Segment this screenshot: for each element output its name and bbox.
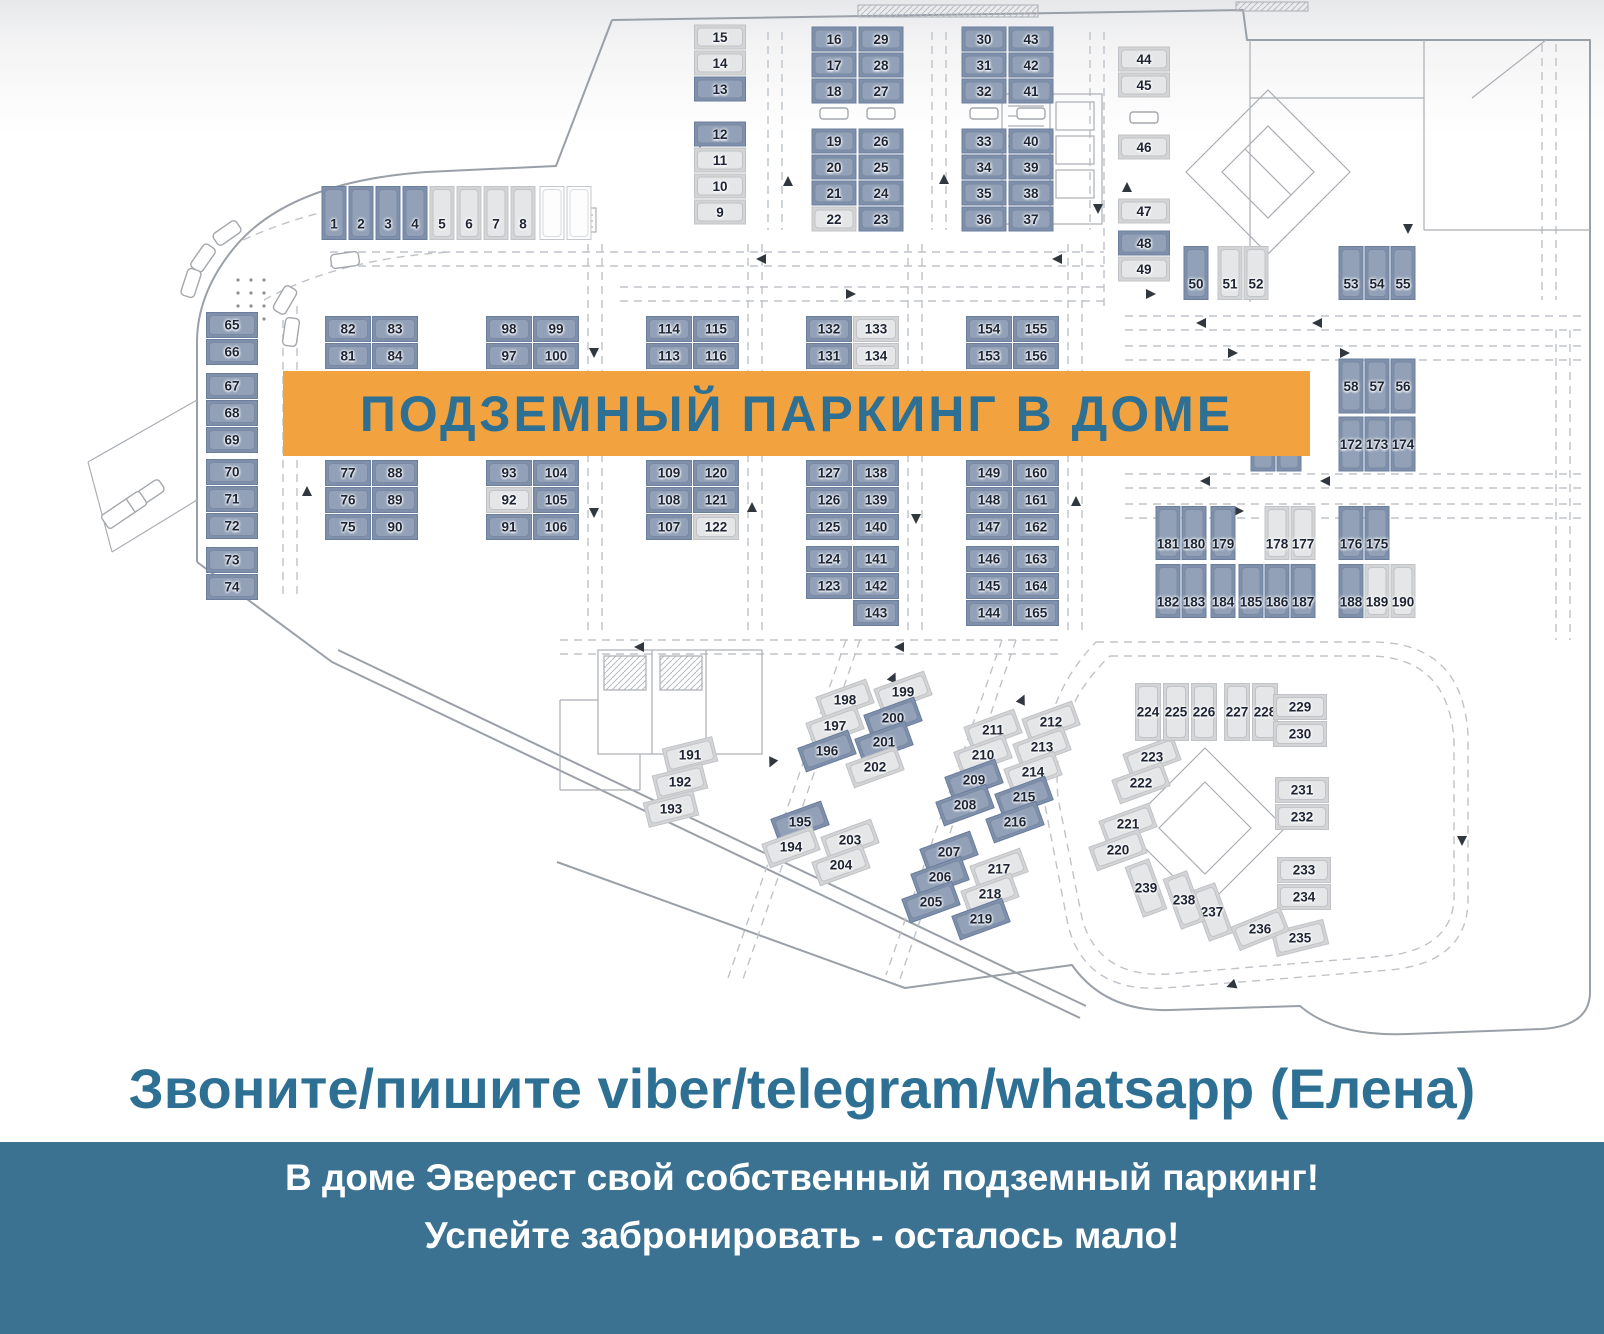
parking-spot-28: 28 — [859, 53, 904, 78]
parking-spot-141: 141 — [853, 546, 899, 572]
spot-number: 18 — [826, 84, 841, 99]
spot-number: 107 — [658, 520, 681, 535]
parking-spot-106: 106 — [533, 514, 579, 540]
parking-spot-140: 140 — [853, 514, 899, 540]
parking-spot-29: 29 — [859, 27, 904, 52]
parking-spots-layer: 1234567815141312111091629172818271926202… — [0, 0, 1604, 1040]
parking-spot-54: 54 — [1365, 246, 1390, 300]
parking-spot-226: 226 — [1191, 683, 1217, 741]
main-banner-title: ПОДЗЕМНЫЙ ПАРКИНГ В ДОМЕ — [360, 385, 1233, 443]
spot-number: 88 — [387, 466, 402, 481]
spot-number: 19 — [826, 134, 841, 149]
spot-number: 181 — [1157, 536, 1180, 551]
spot-number: 56 — [1395, 379, 1410, 394]
spot-number: 36 — [976, 212, 991, 227]
spot-number: 191 — [679, 748, 702, 763]
parking-spot-163: 163 — [1013, 546, 1059, 572]
spot-number: 46 — [1136, 140, 1151, 155]
parking-spot-121: 121 — [693, 487, 739, 513]
spot-number: 98 — [501, 322, 516, 337]
parking-spot-58: 58 — [1339, 359, 1364, 414]
parking-spot-90: 90 — [372, 514, 418, 540]
parking-spot-84: 84 — [372, 343, 418, 369]
spot-number: 116 — [705, 349, 727, 364]
parking-spot-9: 9 — [694, 200, 746, 225]
parking-spot-68: 68 — [206, 400, 258, 426]
spot-number: 231 — [1291, 783, 1314, 798]
spot-number: 126 — [818, 493, 841, 508]
spot-number: 57 — [1369, 379, 1384, 394]
spot-number: 74 — [224, 580, 239, 595]
spot-number: 10 — [712, 179, 727, 194]
spot-number: 69 — [224, 433, 239, 448]
spot-number: 45 — [1136, 78, 1151, 93]
parking-spot-8: 8 — [511, 186, 536, 240]
parking-spot-33: 33 — [962, 129, 1007, 154]
parking-spot-72: 72 — [206, 513, 258, 539]
parking-spot-185: 185 — [1239, 564, 1264, 618]
parking-spot-104: 104 — [533, 460, 579, 486]
spot-number: 99 — [548, 322, 563, 337]
spot-number: 222 — [1130, 776, 1153, 791]
parking-spot-233: 233 — [1277, 857, 1331, 883]
spot-number: 190 — [1392, 594, 1415, 609]
parking-spot-26: 26 — [859, 129, 904, 154]
spot-number: 229 — [1289, 700, 1312, 715]
spot-number: 180 — [1183, 536, 1206, 551]
parking-spot-73: 73 — [206, 547, 258, 573]
spot-number: 192 — [669, 775, 692, 790]
spot-number: 51 — [1222, 276, 1237, 291]
parking-spot-53: 53 — [1339, 246, 1364, 300]
parking-spot-183: 183 — [1182, 564, 1207, 618]
parking-spot-180: 180 — [1182, 506, 1207, 560]
parking-spot-114: 114 — [646, 316, 692, 342]
spot-number: 3 — [384, 216, 392, 231]
parking-spot-122: 122 — [693, 514, 739, 540]
spot-number: 140 — [865, 520, 888, 535]
spot-number: 41 — [1023, 84, 1038, 99]
parking-spot-70: 70 — [206, 459, 258, 485]
spot-number: 233 — [1293, 863, 1316, 878]
spot-number: 55 — [1395, 276, 1410, 291]
spot-number: 54 — [1369, 276, 1384, 291]
spot-number: 175 — [1366, 536, 1389, 551]
spot-number: 75 — [340, 520, 355, 535]
spot-number: 127 — [818, 466, 841, 481]
parking-spot-142: 142 — [853, 573, 899, 599]
parking-spot-143: 143 — [853, 600, 899, 626]
spot-number: 106 — [545, 520, 568, 535]
parking-spot-91: 91 — [486, 514, 532, 540]
spot-number: 104 — [545, 466, 568, 481]
spot-number: 47 — [1136, 204, 1151, 219]
parking-spot-109: 109 — [646, 460, 692, 486]
spot-number: 185 — [1240, 594, 1263, 609]
spot-number: 196 — [816, 744, 839, 759]
spot-number: 153 — [978, 349, 1001, 364]
spot-number: 161 — [1025, 493, 1048, 508]
spot-number: 172 — [1340, 437, 1363, 452]
spot-number: 13 — [712, 82, 727, 97]
parking-spot-145: 145 — [966, 573, 1012, 599]
parking-spot-16: 16 — [812, 27, 857, 52]
spot-number: 178 — [1266, 536, 1289, 551]
spot-number: 147 — [978, 520, 1001, 535]
parking-spot-187: 187 — [1291, 564, 1316, 618]
parking-spot-37: 37 — [1009, 207, 1054, 232]
parking-spot-1: 1 — [322, 186, 347, 240]
parking-spot-113: 113 — [646, 343, 692, 369]
parking-spot-66: 66 — [206, 339, 258, 365]
spot-number: 28 — [873, 58, 888, 73]
parking-spot-35: 35 — [962, 181, 1007, 206]
parking-spot-120: 120 — [693, 460, 739, 486]
parking-spot-50: 50 — [1184, 246, 1209, 300]
spot-number: 37 — [1023, 212, 1038, 227]
spot-number: 134 — [865, 349, 888, 364]
spot-number: 81 — [340, 349, 355, 364]
main-banner: ПОДЗЕМНЫЙ ПАРКИНГ В ДОМЕ — [283, 371, 1310, 456]
parking-spot-189: 189 — [1365, 564, 1390, 618]
spot-number: 7 — [492, 216, 500, 231]
spot-number: 21 — [826, 186, 841, 201]
parking-spot-107: 107 — [646, 514, 692, 540]
spot-number: 187 — [1292, 594, 1315, 609]
parking-spot-224: 224 — [1135, 683, 1161, 741]
spot-number: 23 — [873, 212, 888, 227]
parking-spot-162: 162 — [1013, 514, 1059, 540]
car-stall-marker — [543, 189, 562, 237]
parking-spot-71: 71 — [206, 486, 258, 512]
footer-band: В доме Эверест свой собственный подземны… — [0, 1142, 1604, 1334]
parking-spot-65: 65 — [206, 312, 258, 338]
spot-number: 182 — [1157, 594, 1180, 609]
parking-spot-48: 48 — [1118, 231, 1170, 256]
parking-spot-6: 6 — [457, 186, 482, 240]
spot-number: 84 — [387, 349, 402, 364]
spot-number: 235 — [1289, 931, 1312, 946]
spot-number: 113 — [658, 349, 680, 364]
spot-number: 219 — [970, 912, 993, 927]
spot-number: 109 — [658, 466, 681, 481]
parking-spot-178: 178 — [1265, 506, 1290, 560]
spot-number: 27 — [873, 84, 888, 99]
spot-number: 100 — [545, 349, 568, 364]
parking-spot-67: 67 — [206, 373, 258, 399]
parking-spot-123: 123 — [806, 573, 852, 599]
spot-number: 77 — [340, 466, 355, 481]
parking-spot-99: 99 — [533, 316, 579, 342]
spot-number: 141 — [865, 552, 888, 567]
spot-number: 9 — [716, 205, 724, 220]
parking-spot-156: 156 — [1013, 343, 1059, 369]
parking-spot-133: 133 — [853, 316, 899, 342]
parking-spot-3: 3 — [376, 186, 401, 240]
spot-number: 33 — [976, 134, 991, 149]
spot-number: 227 — [1226, 705, 1249, 720]
parking-spot-176: 176 — [1339, 506, 1364, 560]
spot-number: 22 — [826, 212, 841, 227]
spot-number: 82 — [340, 322, 355, 337]
parking-spot-239: 239 — [1125, 858, 1168, 918]
spot-number: 173 — [1366, 437, 1389, 452]
contact-headline: Звоните/пишите viber/telegram/whatsapp (… — [0, 1034, 1604, 1142]
parking-spot-98: 98 — [486, 316, 532, 342]
parking-spot-93: 93 — [486, 460, 532, 486]
parking-spot-74: 74 — [206, 574, 258, 600]
spot-number: 11 — [713, 153, 727, 168]
parking-spot-76: 76 — [325, 487, 371, 513]
parking-spot-165: 165 — [1013, 600, 1059, 626]
parking-spot-126: 126 — [806, 487, 852, 513]
parking-spot-41: 41 — [1009, 79, 1054, 104]
parking-spot-21: 21 — [812, 181, 857, 206]
parking-spot-17: 17 — [812, 53, 857, 78]
parking-spot-blank — [567, 186, 592, 240]
spot-number: 138 — [865, 466, 888, 481]
spot-number: 72 — [224, 519, 239, 534]
spot-number: 114 — [658, 322, 680, 337]
parking-spot-144: 144 — [966, 600, 1012, 626]
parking-spot-222: 222 — [1111, 762, 1171, 805]
spot-number: 42 — [1023, 58, 1038, 73]
spot-number: 164 — [1025, 579, 1048, 594]
spot-number: 202 — [864, 760, 887, 775]
parking-spot-14: 14 — [694, 51, 746, 76]
parking-spot-181: 181 — [1156, 506, 1181, 560]
parking-spot-186: 186 — [1265, 564, 1290, 618]
spot-number: 83 — [387, 322, 402, 337]
car-stall-marker — [570, 189, 589, 237]
spot-number: 50 — [1188, 276, 1203, 291]
spot-number: 76 — [340, 493, 355, 508]
parking-spot-42: 42 — [1009, 53, 1054, 78]
parking-spot-125: 125 — [806, 514, 852, 540]
parking-spot-179: 179 — [1211, 506, 1236, 560]
spot-number: 194 — [780, 840, 803, 855]
spot-number: 93 — [501, 466, 516, 481]
parking-spot-230: 230 — [1273, 721, 1327, 747]
parking-spot-10: 10 — [694, 174, 746, 199]
spot-number: 70 — [224, 465, 239, 480]
footer-line-1: В доме Эверест свой собственный подземны… — [285, 1154, 1319, 1202]
parking-spot-161: 161 — [1013, 487, 1059, 513]
parking-spot-15: 15 — [694, 25, 746, 50]
parking-spot-154: 154 — [966, 316, 1012, 342]
spot-number: 122 — [705, 520, 728, 535]
parking-spot-20: 20 — [812, 155, 857, 180]
spot-number: 162 — [1025, 520, 1048, 535]
spot-number: 26 — [873, 134, 888, 149]
spot-number: 8 — [519, 216, 527, 231]
spot-number: 123 — [818, 579, 841, 594]
parking-spot-44: 44 — [1118, 47, 1170, 72]
spot-number: 160 — [1025, 466, 1048, 481]
parking-spot-7: 7 — [484, 186, 509, 240]
spot-number: 226 — [1193, 705, 1216, 720]
parking-spot-193: 193 — [643, 790, 700, 828]
spot-number: 65 — [224, 318, 239, 333]
parking-spot-231: 231 — [1275, 777, 1329, 803]
spot-number: 189 — [1366, 594, 1389, 609]
spot-number: 176 — [1340, 536, 1363, 551]
spot-number: 216 — [1004, 815, 1027, 830]
parking-spot-89: 89 — [372, 487, 418, 513]
spot-number: 31 — [976, 58, 991, 73]
parking-spot-27: 27 — [859, 79, 904, 104]
parking-spot-30: 30 — [962, 27, 1007, 52]
spot-number: 144 — [978, 606, 1001, 621]
spot-number: 225 — [1165, 705, 1188, 720]
spot-number: 232 — [1291, 810, 1314, 825]
parking-spot-227: 227 — [1224, 683, 1250, 741]
parking-spot-138: 138 — [853, 460, 899, 486]
spot-number: 149 — [978, 466, 1001, 481]
parking-spot-172: 172 — [1339, 417, 1364, 472]
parking-spot-22: 22 — [812, 207, 857, 232]
parking-spot-190: 190 — [1391, 564, 1416, 618]
parking-spot-40: 40 — [1009, 129, 1054, 154]
spot-number: 108 — [658, 493, 681, 508]
spot-number: 121 — [705, 493, 728, 508]
parking-spot-12: 12 — [694, 122, 746, 147]
parking-spot-124: 124 — [806, 546, 852, 572]
spot-number: 143 — [865, 606, 888, 621]
spot-number: 148 — [978, 493, 1001, 508]
spot-number: 184 — [1212, 594, 1235, 609]
parking-spot-11: 11 — [694, 148, 746, 173]
parking-spot-43: 43 — [1009, 27, 1054, 52]
parking-spot-175: 175 — [1365, 506, 1390, 560]
spot-number: 25 — [873, 160, 888, 175]
parking-spot-234: 234 — [1277, 884, 1331, 910]
parking-spot-108: 108 — [646, 487, 692, 513]
parking-spot-19: 19 — [812, 129, 857, 154]
spot-number: 92 — [501, 493, 516, 508]
spot-number: 49 — [1136, 262, 1151, 277]
parking-spot-83: 83 — [372, 316, 418, 342]
spot-number: 35 — [976, 186, 991, 201]
spot-number: 5 — [438, 216, 446, 231]
spot-number: 71 — [224, 492, 239, 507]
spot-number: 43 — [1023, 32, 1038, 47]
parking-spot-100: 100 — [533, 343, 579, 369]
footer-line-2: Успейте забронировать - осталось мало! — [425, 1212, 1180, 1260]
parking-spot-51: 51 — [1218, 246, 1243, 300]
parking-spot-34: 34 — [962, 155, 1007, 180]
spot-number: 38 — [1023, 186, 1038, 201]
parking-spot-75: 75 — [325, 514, 371, 540]
spot-number: 220 — [1107, 843, 1130, 858]
spot-number: 39 — [1023, 160, 1038, 175]
spot-number: 16 — [826, 32, 841, 47]
spot-number: 52 — [1248, 276, 1263, 291]
parking-spot-134: 134 — [853, 343, 899, 369]
parking-plan-flyer: 1234567815141312111091629172818271926202… — [0, 0, 1604, 1334]
parking-spot-232: 232 — [1275, 804, 1329, 830]
parking-spot-97: 97 — [486, 343, 532, 369]
parking-spot-229: 229 — [1273, 694, 1327, 720]
parking-spot-57: 57 — [1365, 359, 1390, 414]
spot-number: 146 — [978, 552, 1001, 567]
parking-spot-225: 225 — [1163, 683, 1189, 741]
spot-number: 30 — [976, 32, 991, 47]
spot-number: 44 — [1136, 52, 1151, 67]
spot-number: 48 — [1136, 236, 1151, 251]
spot-number: 154 — [978, 322, 1001, 337]
parking-spot-188: 188 — [1339, 564, 1364, 618]
spot-number: 188 — [1340, 594, 1363, 609]
spot-number: 66 — [224, 345, 239, 360]
spot-number: 20 — [826, 160, 841, 175]
parking-spot-164: 164 — [1013, 573, 1059, 599]
parking-spot-blank — [540, 186, 565, 240]
parking-spot-174: 174 — [1391, 417, 1416, 472]
parking-spot-32: 32 — [962, 79, 1007, 104]
spot-number: 239 — [1135, 881, 1158, 896]
spot-number: 12 — [712, 127, 727, 142]
spot-number: 6 — [465, 216, 473, 231]
spot-number: 124 — [818, 552, 841, 567]
spot-number: 131 — [818, 349, 841, 364]
spot-number: 142 — [865, 579, 888, 594]
spot-number: 133 — [865, 322, 888, 337]
parking-spot-148: 148 — [966, 487, 1012, 513]
spot-number: 165 — [1025, 606, 1048, 621]
spot-number: 97 — [501, 349, 516, 364]
spot-number: 163 — [1025, 552, 1048, 567]
parking-spot-39: 39 — [1009, 155, 1054, 180]
parking-spot-127: 127 — [806, 460, 852, 486]
spot-number: 105 — [545, 493, 568, 508]
parking-spot-4: 4 — [403, 186, 428, 240]
spot-number: 145 — [978, 579, 1001, 594]
parking-spot-146: 146 — [966, 546, 1012, 572]
parking-spot-160: 160 — [1013, 460, 1059, 486]
parking-spot-131: 131 — [806, 343, 852, 369]
spot-number: 2 — [357, 216, 365, 231]
parking-spot-132: 132 — [806, 316, 852, 342]
spot-number: 58 — [1343, 379, 1358, 394]
parking-spot-88: 88 — [372, 460, 418, 486]
parking-spot-147: 147 — [966, 514, 1012, 540]
parking-spot-81: 81 — [325, 343, 371, 369]
spot-number: 238 — [1173, 893, 1196, 908]
parking-spot-173: 173 — [1365, 417, 1390, 472]
spot-number: 236 — [1249, 922, 1272, 937]
spot-number: 68 — [224, 406, 239, 421]
spot-number: 205 — [920, 895, 943, 910]
spot-number: 17 — [826, 58, 841, 73]
spot-number: 120 — [705, 466, 728, 481]
parking-spot-52: 52 — [1244, 246, 1269, 300]
spot-number: 53 — [1343, 276, 1358, 291]
spot-number: 125 — [818, 520, 841, 535]
spot-number: 91 — [501, 520, 516, 535]
parking-spot-155: 155 — [1013, 316, 1059, 342]
spot-number: 115 — [705, 322, 727, 337]
parking-spot-69: 69 — [206, 427, 258, 453]
spot-number: 230 — [1289, 727, 1312, 742]
parking-spot-36: 36 — [962, 207, 1007, 232]
spot-number: 139 — [865, 493, 888, 508]
parking-spot-115: 115 — [693, 316, 739, 342]
parking-spot-105: 105 — [533, 487, 579, 513]
parking-spot-184: 184 — [1211, 564, 1236, 618]
spot-number: 24 — [873, 186, 888, 201]
parking-spot-18: 18 — [812, 79, 857, 104]
